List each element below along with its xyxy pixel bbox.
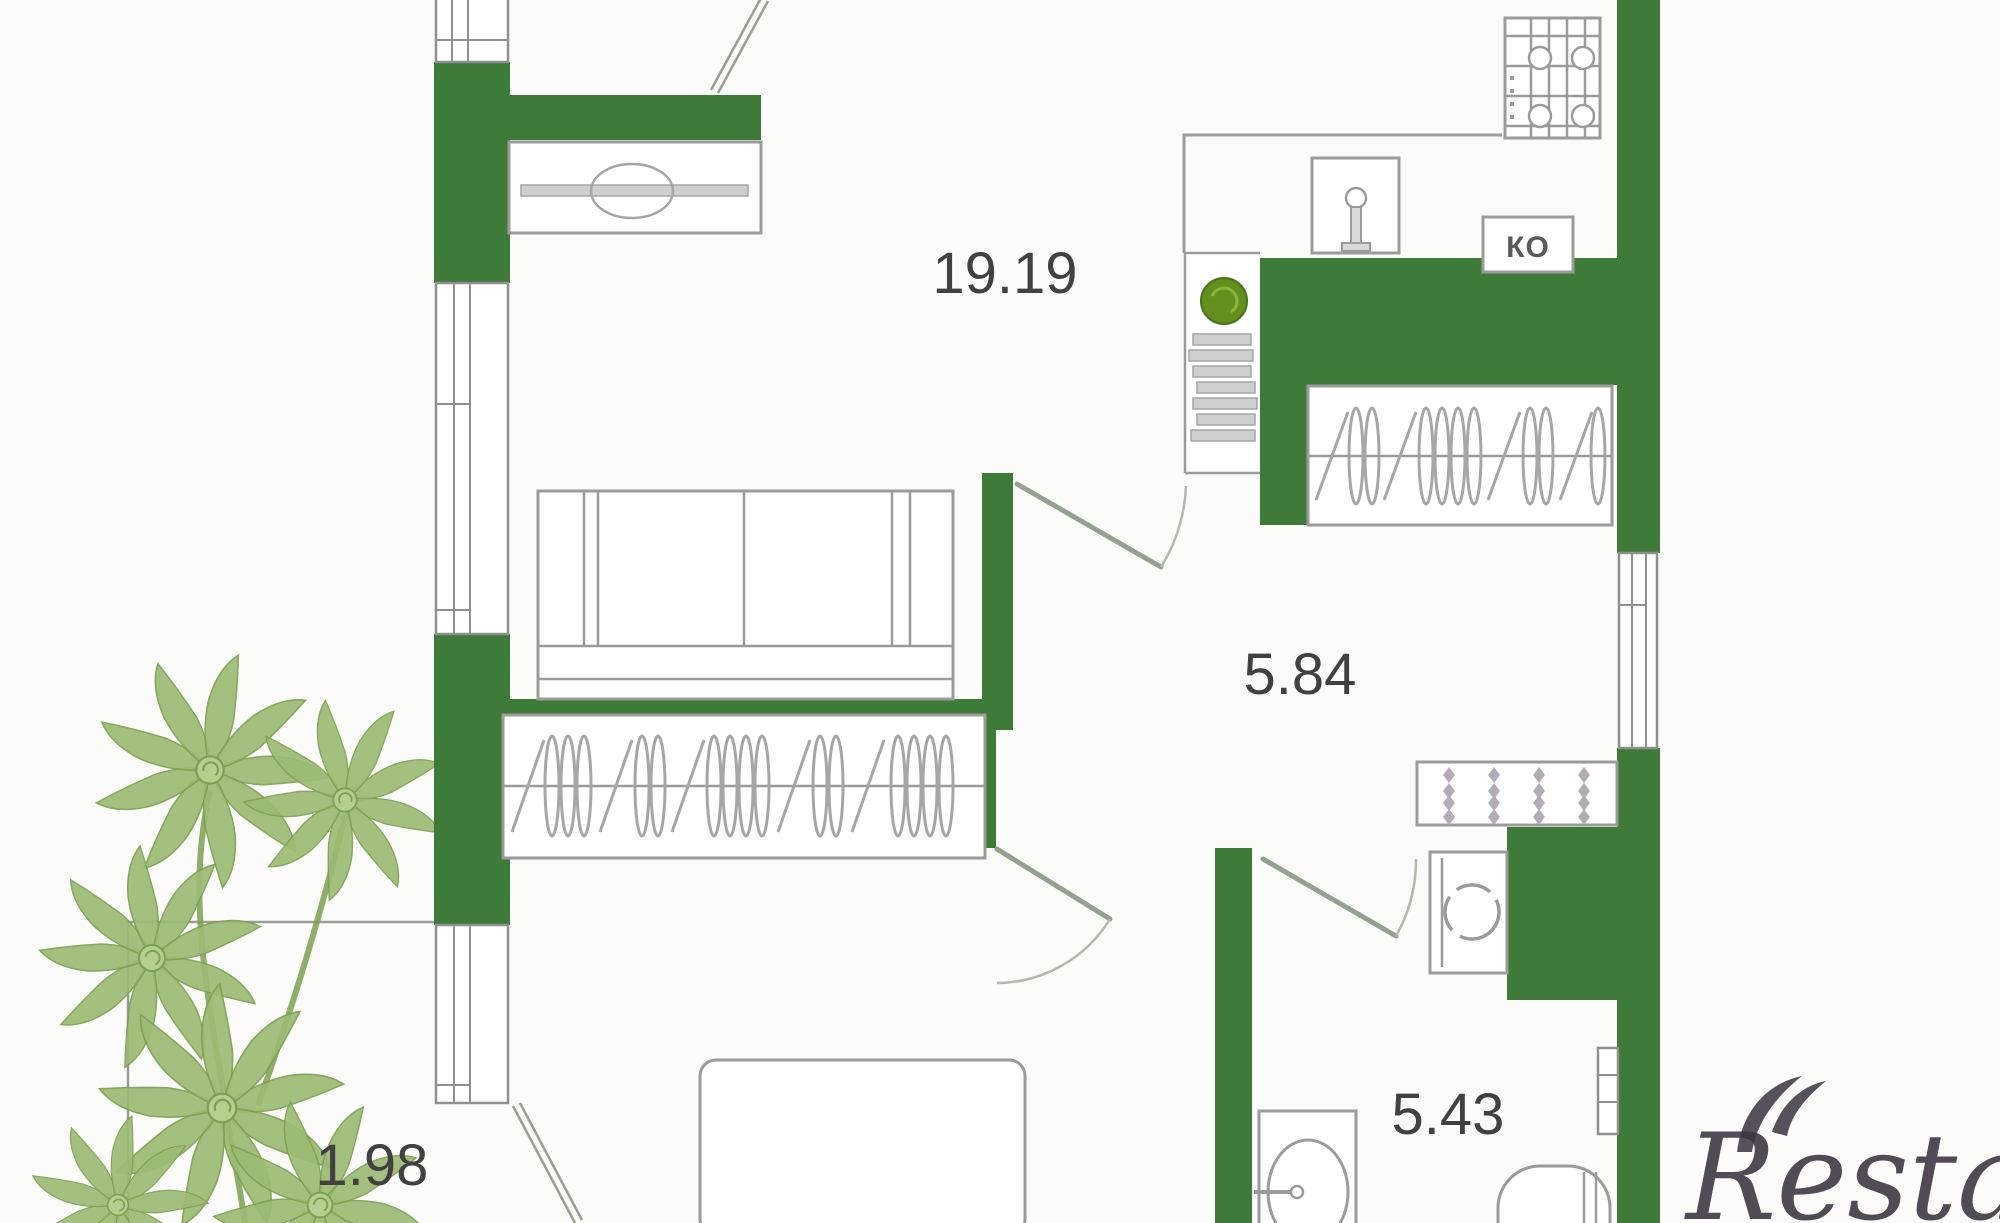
gas-stove-icon <box>1505 18 1600 138</box>
wall-living-bedroom <box>500 699 996 715</box>
wall-living-hall <box>982 473 1013 730</box>
wall-left-upper <box>434 62 510 283</box>
washing-machine-icon <box>1430 852 1510 973</box>
wall-kitchen-hall-ext <box>1260 385 1308 525</box>
area-label-hallway: 5.84 <box>1244 642 1357 707</box>
radiator-icon <box>1189 334 1257 441</box>
window-left-top <box>436 0 508 62</box>
toilet-icon <box>1498 1166 1610 1223</box>
duct-label: КО <box>1506 231 1550 264</box>
area-label-balcony: 1.98 <box>316 1133 429 1198</box>
watermark-text: Restate <box>1684 1109 2000 1223</box>
wall-bedroom-bathroom <box>1215 848 1252 1223</box>
wall-bathroom-block <box>1507 827 1617 1000</box>
vent-grille <box>1598 1048 1618 1134</box>
bathroom-sink-icon <box>1254 1111 1356 1223</box>
bed <box>700 1060 1025 1223</box>
wall-kitchen-hall <box>1260 258 1617 385</box>
wall-right-upper <box>1617 0 1660 553</box>
window-left-middle <box>436 283 508 634</box>
duct-box: КО <box>1483 217 1573 272</box>
window-right <box>1619 553 1657 748</box>
tv-stand <box>509 142 761 233</box>
wall-left-lower <box>434 634 510 925</box>
floor-plan-svg: КО <box>0 0 2000 1223</box>
floor-plan-image: КО <box>0 0 2000 1223</box>
wardrobe-living <box>503 715 985 858</box>
niche <box>1184 253 1260 473</box>
tv-screen <box>521 185 748 196</box>
kitchen-sink-icon <box>1312 158 1399 253</box>
area-label-living-kitchen: 19.19 <box>932 241 1077 306</box>
wall-right-lower <box>1617 748 1660 1223</box>
area-label-bathroom: 5.43 <box>1392 1082 1505 1147</box>
window-left-bottom <box>436 925 508 1103</box>
wardrobe-hallway <box>1308 386 1612 525</box>
shoe-cabinet <box>1417 762 1617 825</box>
wall-top-living <box>509 95 761 140</box>
sofa <box>538 491 953 699</box>
potted-plant-icon <box>1201 278 1247 324</box>
